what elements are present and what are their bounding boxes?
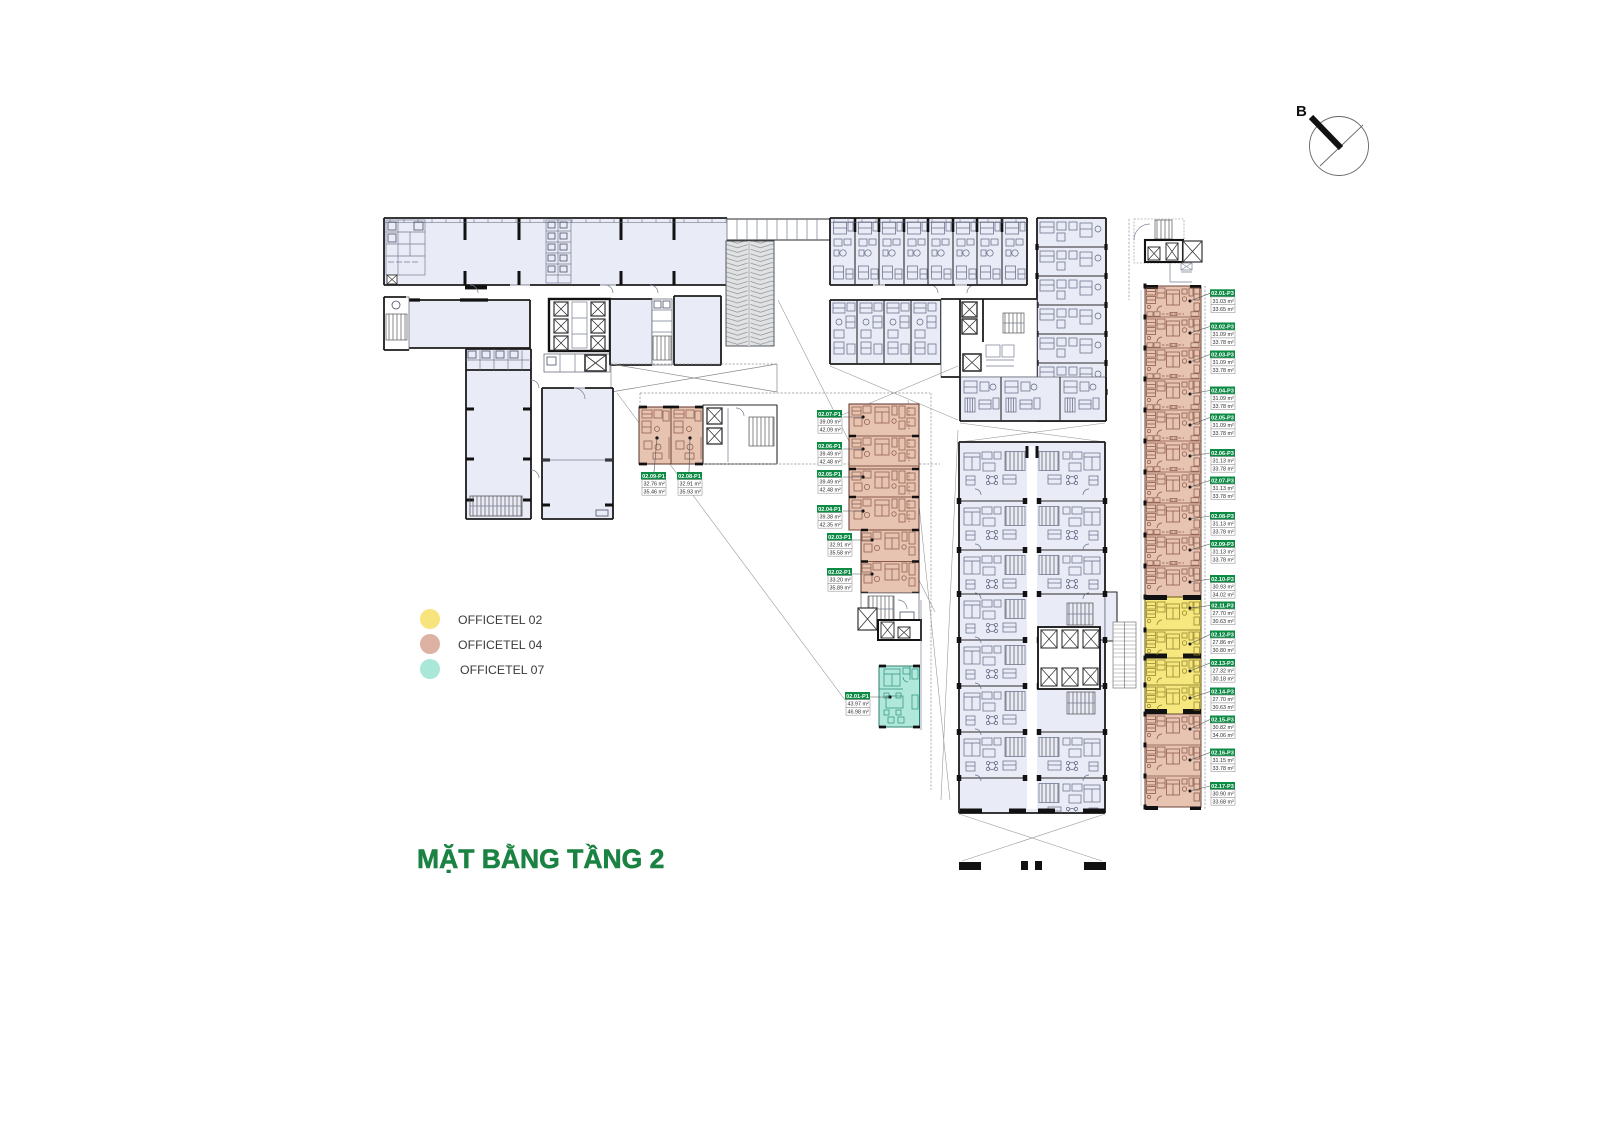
svg-text:02.05-P1: 02.05-P1 xyxy=(818,472,841,478)
svg-text:OFFICETEL 07: OFFICETEL 07 xyxy=(460,663,544,677)
svg-text:32.76 m²: 32.76 m² xyxy=(644,482,665,488)
svg-text:33.78 m²: 33.78 m² xyxy=(1213,494,1234,500)
svg-text:31.15 m²: 31.15 m² xyxy=(1213,758,1234,764)
svg-text:39.49 m²: 39.49 m² xyxy=(820,480,841,486)
svg-text:33.78 m²: 33.78 m² xyxy=(1213,368,1234,374)
svg-text:02.06-P1: 02.06-P1 xyxy=(818,444,841,450)
svg-text:27.70 m²: 27.70 m² xyxy=(1213,611,1234,617)
svg-text:02.02-P1: 02.02-P1 xyxy=(828,570,851,576)
svg-text:33.68 m²: 33.68 m² xyxy=(1213,800,1234,806)
svg-text:30.18 m²: 30.18 m² xyxy=(1213,677,1234,683)
svg-text:02.14-P3: 02.14-P3 xyxy=(1211,689,1234,695)
svg-text:MẶT BẰNG TẦNG 2: MẶT BẰNG TẦNG 2 xyxy=(417,844,664,874)
svg-text:27.70 m²: 27.70 m² xyxy=(1213,697,1234,703)
svg-text:02.07-P3: 02.07-P3 xyxy=(1211,478,1234,484)
svg-text:33.78 m²: 33.78 m² xyxy=(1213,530,1234,536)
svg-text:02.09-P3: 02.09-P3 xyxy=(1211,542,1234,548)
svg-text:46.98 m²: 46.98 m² xyxy=(848,710,869,716)
svg-text:32.91 m²: 32.91 m² xyxy=(680,482,701,488)
svg-text:OFFICETEL 02: OFFICETEL 02 xyxy=(458,613,542,627)
svg-text:OFFICETEL 04: OFFICETEL 04 xyxy=(458,638,542,652)
svg-text:31.09 m²: 31.09 m² xyxy=(1213,360,1234,366)
svg-text:30.90 m²: 30.90 m² xyxy=(1213,792,1234,798)
svg-text:42.35 m²: 42.35 m² xyxy=(820,523,841,529)
svg-text:27.86 m²: 27.86 m² xyxy=(1213,640,1234,646)
svg-text:34.06 m²: 34.06 m² xyxy=(1213,733,1234,739)
svg-text:02.03-P1: 02.03-P1 xyxy=(828,535,851,541)
svg-text:39.38 m²: 39.38 m² xyxy=(820,515,841,521)
svg-text:02.07-P1: 02.07-P1 xyxy=(818,412,841,418)
svg-text:32.91 m²: 32.91 m² xyxy=(830,543,851,549)
svg-text:33.78 m²: 33.78 m² xyxy=(1213,340,1234,346)
svg-text:42.09 m²: 42.09 m² xyxy=(820,428,841,434)
svg-text:33.78 m²: 33.78 m² xyxy=(1213,467,1234,473)
svg-text:34.02 m²: 34.02 m² xyxy=(1213,593,1234,599)
svg-text:39.49 m²: 39.49 m² xyxy=(820,452,841,458)
svg-text:30.63 m²: 30.63 m² xyxy=(1213,705,1234,711)
svg-text:43.97 m²: 43.97 m² xyxy=(848,702,869,708)
svg-text:02.01-P1: 02.01-P1 xyxy=(846,694,869,700)
svg-text:31.03 m²: 31.03 m² xyxy=(1213,299,1234,305)
svg-text:02.08-P3: 02.08-P3 xyxy=(1211,514,1234,520)
svg-text:31.13 m²: 31.13 m² xyxy=(1213,522,1234,528)
svg-text:02.09-P1: 02.09-P1 xyxy=(642,474,665,480)
svg-text:02.05-P3: 02.05-P3 xyxy=(1211,415,1234,421)
svg-text:33.65 m²: 33.65 m² xyxy=(1213,307,1234,313)
svg-text:02.15-P3: 02.15-P3 xyxy=(1211,717,1234,723)
svg-text:42.48 m²: 42.48 m² xyxy=(820,488,841,494)
svg-text:31.09 m²: 31.09 m² xyxy=(1213,423,1234,429)
svg-text:02.16-P3: 02.16-P3 xyxy=(1211,750,1234,756)
svg-text:02.01-P3: 02.01-P3 xyxy=(1211,291,1234,297)
svg-text:35.89 m²: 35.89 m² xyxy=(830,586,851,592)
svg-text:02.10-P3: 02.10-P3 xyxy=(1211,577,1234,583)
svg-text:02.13-P3: 02.13-P3 xyxy=(1211,661,1234,667)
svg-text:31.13 m²: 31.13 m² xyxy=(1213,459,1234,465)
svg-text:30.80 m²: 30.80 m² xyxy=(1213,648,1234,654)
svg-text:33.78 m²: 33.78 m² xyxy=(1213,766,1234,772)
svg-text:02.11-P3: 02.11-P3 xyxy=(1211,603,1233,609)
svg-text:02.03-P3: 02.03-P3 xyxy=(1211,352,1234,358)
svg-text:02.12-P3: 02.12-P3 xyxy=(1211,632,1234,638)
svg-text:31.13 m²: 31.13 m² xyxy=(1213,550,1234,556)
svg-text:42.48 m²: 42.48 m² xyxy=(820,460,841,466)
svg-text:02.04-P3: 02.04-P3 xyxy=(1211,388,1234,394)
svg-text:33.78 m²: 33.78 m² xyxy=(1213,558,1234,564)
svg-text:27.32 m²: 27.32 m² xyxy=(1213,669,1234,675)
svg-text:35.58 m²: 35.58 m² xyxy=(830,551,851,557)
svg-text:35.93 m²: 35.93 m² xyxy=(680,490,701,496)
svg-text:35.46 m²: 35.46 m² xyxy=(644,490,665,496)
svg-text:30.82 m²: 30.82 m² xyxy=(1213,725,1234,731)
svg-text:B: B xyxy=(1296,103,1307,120)
svg-text:02.08-P1: 02.08-P1 xyxy=(678,474,701,480)
svg-text:02.17-P3: 02.17-P3 xyxy=(1211,784,1234,790)
svg-text:02.04-P1: 02.04-P1 xyxy=(818,507,841,513)
svg-text:33.78 m²: 33.78 m² xyxy=(1213,431,1234,437)
svg-text:31.13 m²: 31.13 m² xyxy=(1213,486,1234,492)
svg-text:31.09 m²: 31.09 m² xyxy=(1213,332,1234,338)
svg-text:30.93 m²: 30.93 m² xyxy=(1213,585,1234,591)
svg-text:30.63 m²: 30.63 m² xyxy=(1213,619,1234,625)
svg-text:02.06-P3: 02.06-P3 xyxy=(1211,451,1234,457)
svg-text:33.20 m²: 33.20 m² xyxy=(830,578,851,584)
svg-text:33.78 m²: 33.78 m² xyxy=(1213,404,1234,410)
svg-text:02.02-P3: 02.02-P3 xyxy=(1211,324,1234,330)
svg-text:39.09 m²: 39.09 m² xyxy=(820,420,841,426)
svg-text:31.09 m²: 31.09 m² xyxy=(1213,396,1234,402)
